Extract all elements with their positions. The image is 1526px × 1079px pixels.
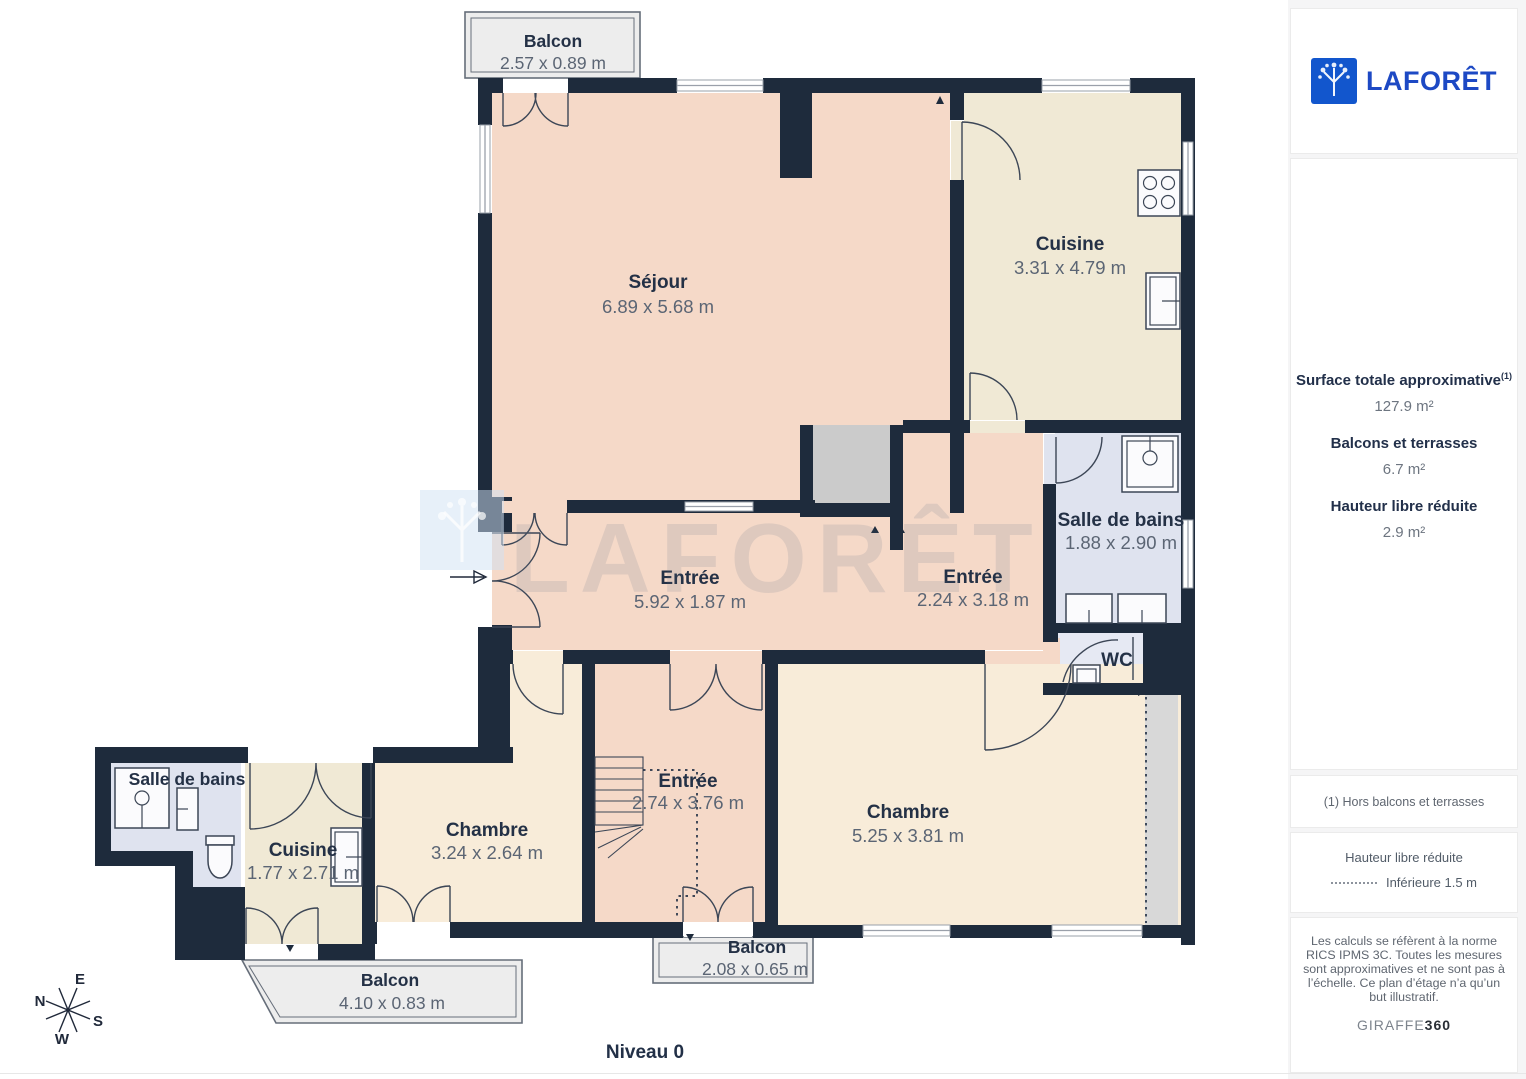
watermark: LAFORÊT [420,490,1043,613]
room-dims: 4.10 x 0.83 m [339,993,445,1013]
giraffe360-brand: GIRAFFE360 [1303,1017,1505,1033]
stat-label-hauteur: Hauteur libre réduite [1291,498,1517,515]
stat-label-balcons: Balcons et terrasses [1291,435,1517,452]
room-chambre-right [778,664,1181,925]
footnote-text: (1) Hors balcons et terrasses [1324,795,1484,809]
room-label: Chambre [446,820,528,841]
logo-card: LAFORÊT [1290,8,1518,154]
room-dims: 3.31 x 4.79 m [1014,257,1126,278]
laforet-tree-icon [1311,58,1357,104]
room-dims: 3.24 x 2.64 m [431,842,543,863]
stat-label-surface-totale: Surface totale approximative(1) [1291,371,1517,389]
stat-value-surface-totale: 127.9 m² [1291,398,1517,415]
shower-icon [1122,436,1178,492]
room-label: Entrée [658,771,717,792]
laforet-logo: LAFORÊT [1311,58,1497,104]
footnote-card: (1) Hors balcons et terrasses [1290,775,1518,828]
stove-icon [1138,170,1180,216]
compass-icon: N E S W [35,971,103,1048]
compass-w: W [55,1031,70,1048]
room-dims: 1.77 x 2.71 m [247,862,359,883]
room-dims: 2.08 x 0.65 m [702,959,808,979]
room-dims: 2.74 x 3.76 m [632,792,744,813]
room-label: Salle de bains [129,769,246,789]
room-dims: 5.25 x 3.81 m [852,825,964,846]
bottom-divider [0,1073,1526,1074]
room-label: Salle de bains [1058,510,1185,531]
room-label: Balcon [728,937,786,957]
room-label: WC [1101,650,1133,671]
room-label: Cuisine [1036,234,1105,255]
room-dims: 2.57 x 0.89 m [500,53,606,73]
compass-n: N [35,993,46,1010]
compass-s: S [93,1013,103,1030]
room-dims: 1.88 x 2.90 m [1065,532,1177,553]
reduced-height-zone [1145,695,1178,925]
room-label: Cuisine [269,840,338,861]
legend-item: Inférieure 1.5 m [1386,875,1477,890]
room-dims: 6.89 x 5.68 m [602,296,714,317]
watermark-text: LAFORÊT [510,503,1043,613]
toilet-icon-2 [206,836,234,878]
sink-icon [1146,273,1180,329]
room-label: Balcon [524,31,582,51]
room-label: Chambre [867,802,949,823]
footnote-marker: (1) [1501,371,1512,381]
level-label: Niveau 0 [555,1042,735,1064]
toilet-icon [1073,665,1100,683]
brand-suffix: 360 [1425,1017,1451,1033]
disclaimer-text: Les calculs se réfèrent à la norme RICS … [1303,935,1505,1004]
disclaimer-card: Les calculs se réfèrent à la norme RICS … [1290,917,1518,1073]
brand-name: GIRAFFE [1357,1017,1425,1033]
surface-info-card: Surface totale approximative(1) 127.9 m²… [1290,158,1518,770]
room-label: Balcon [361,970,419,990]
logo-wordmark: LAFORÊT [1366,66,1497,97]
room-label: Séjour [628,272,688,293]
legend-title: Hauteur libre réduite [1291,850,1517,865]
page: Balcon 2.57 x 0.89 m Séjour 6.89 x 5.68 … [0,0,1526,1079]
stat-value-hauteur: 2.9 m² [1291,524,1517,541]
legend-card: Hauteur libre réduite Inférieure 1.5 m [1290,832,1518,913]
void-shaft [813,425,890,503]
compass-e: E [75,971,85,988]
stat-value-balcons: 6.7 m² [1291,461,1517,478]
dotted-line-sample [1331,882,1377,884]
washbasin-icon-2 [177,788,198,830]
